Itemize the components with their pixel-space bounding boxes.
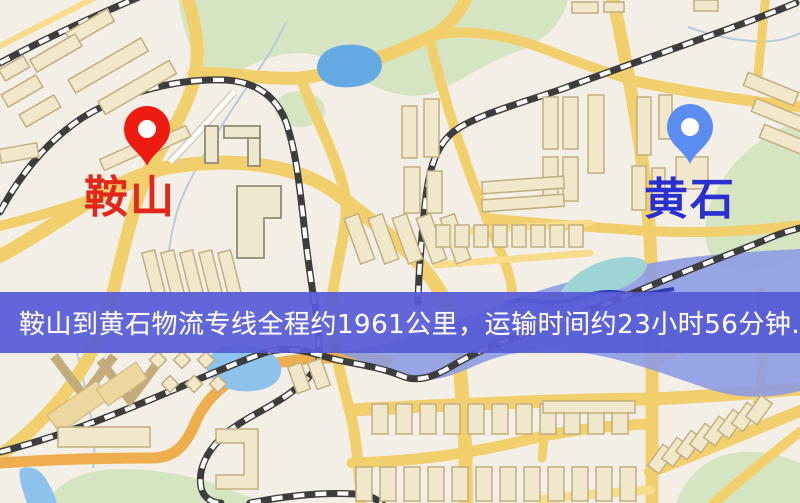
origin-city-label: 鞍山 (84, 176, 176, 220)
map-screenshot: 鞍山 黄石 鞍山到黄石物流专线全程约1961公里，运输时间约23小时56分钟. (0, 0, 800, 503)
origin-pin-icon[interactable] (120, 102, 174, 168)
destination-city-label: 黄石 (644, 178, 736, 222)
route-info-banner: 鞍山到黄石物流专线全程约1961公里，运输时间约23小时56分钟. (0, 292, 800, 353)
destination-pin-icon[interactable] (663, 100, 717, 166)
route-info-text: 鞍山到黄石物流专线全程约1961公里，运输时间约23小时56分钟. (19, 304, 800, 341)
map-canvas[interactable] (0, 0, 800, 503)
